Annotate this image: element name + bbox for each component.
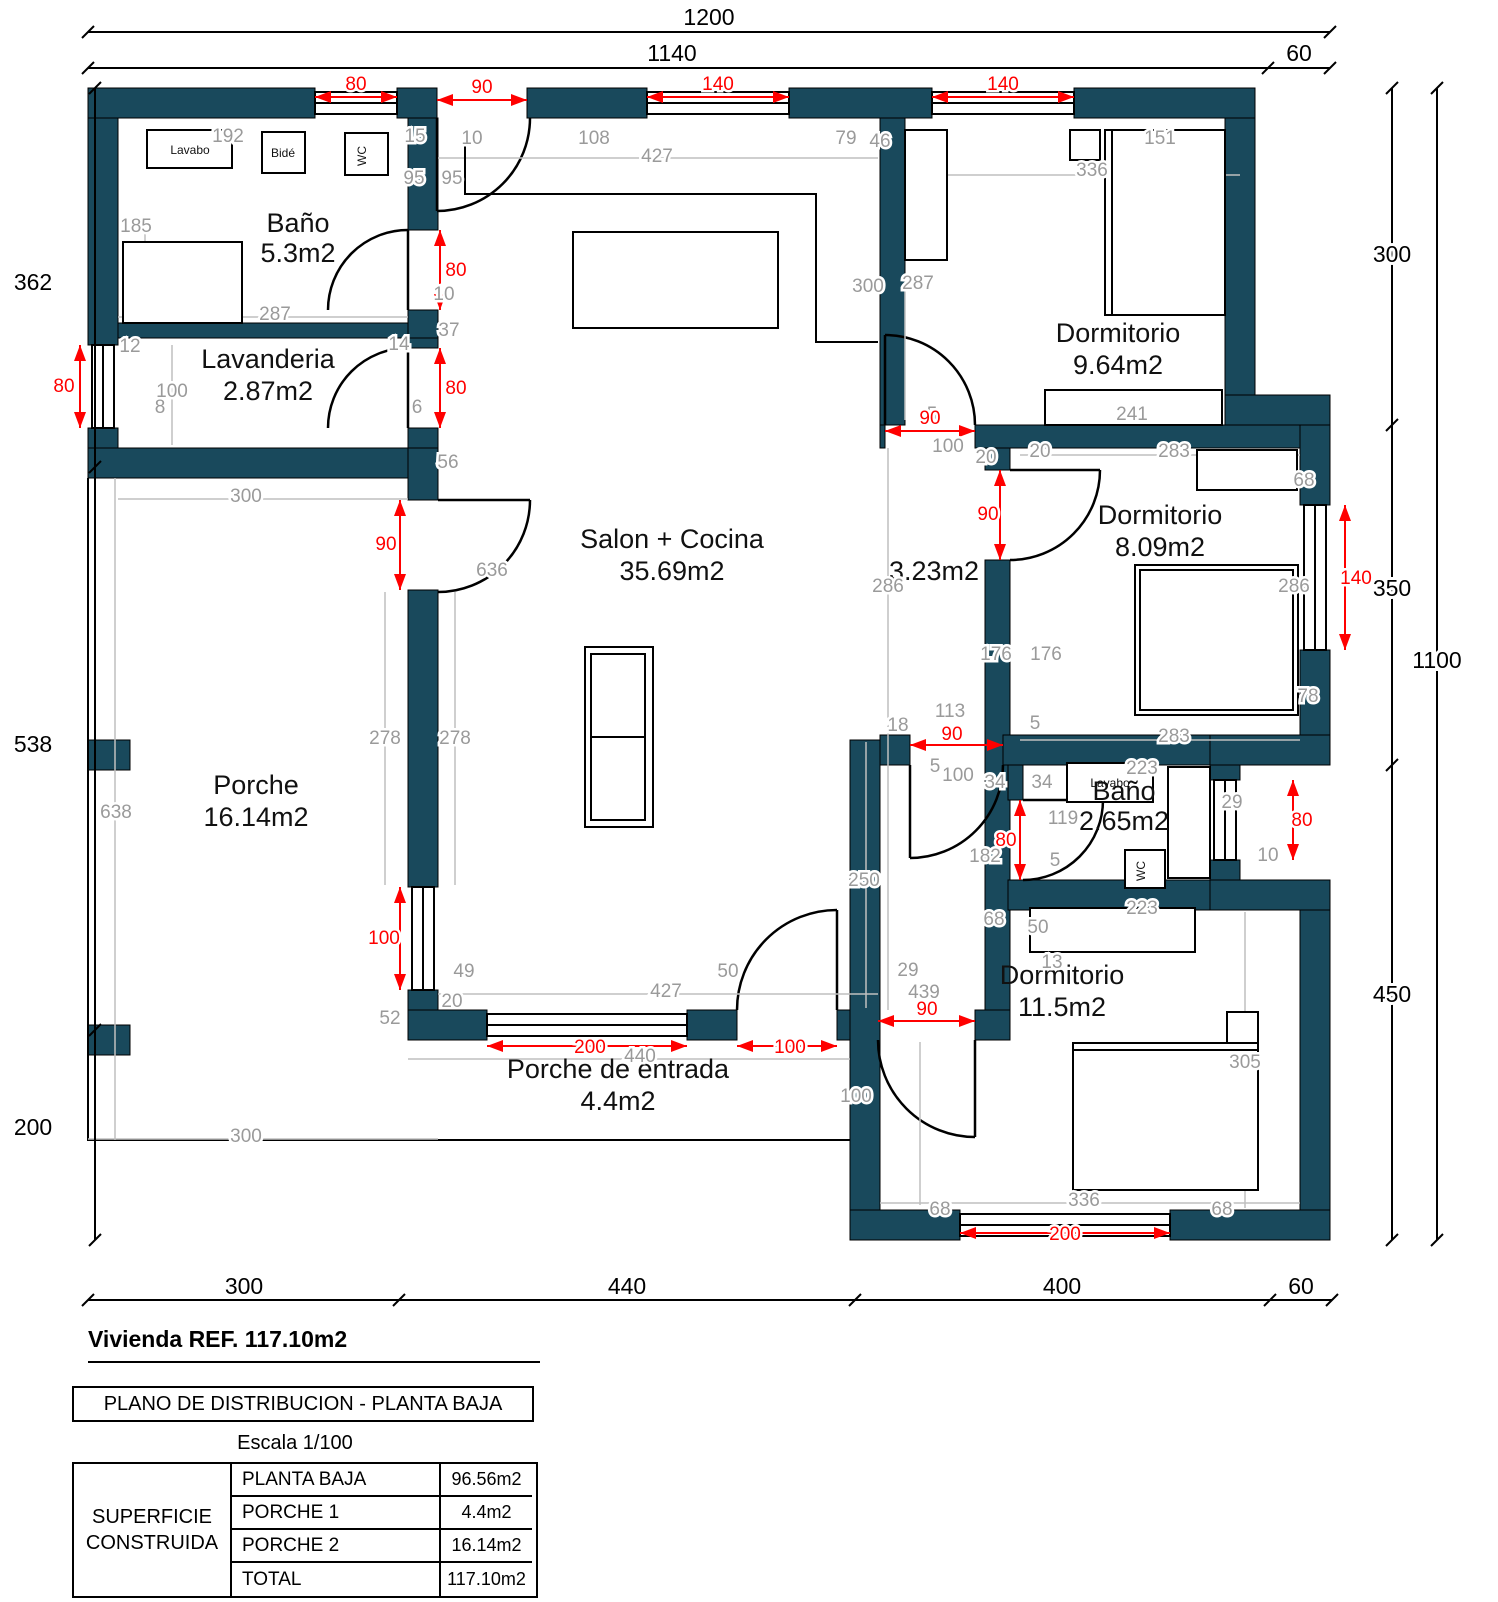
dimension-red: 90 (916, 999, 937, 1020)
dimension-gray: 10 (461, 128, 482, 149)
dimension-gray: 185 (120, 216, 152, 237)
room-label-dormitorio1: Dormitorio (1056, 318, 1181, 348)
dimension-gray: 100 (932, 436, 964, 457)
plan-scale: Escala 1/100 (130, 1432, 460, 1455)
dimension-gray: 13 (1041, 952, 1062, 973)
room-area-dormitorio1: 9.64m2 (1073, 350, 1163, 380)
dimension-gray: 119 (1048, 808, 1078, 829)
dimension-gray: 15 (404, 126, 425, 147)
dimension-gray: 14 (388, 334, 410, 355)
dimension-gray: 176 (1030, 644, 1062, 665)
dimension-red: 90 (941, 724, 962, 745)
dimension-gray: 10 (1257, 845, 1278, 866)
dimension-black: 440 (608, 1273, 646, 1299)
bide-bano1-label: Bidé (271, 146, 295, 160)
door-entrada-salon-top (437, 118, 530, 211)
dimension-gray: 34 (984, 772, 1006, 793)
dimension-black: 1100 (1412, 647, 1461, 673)
dimension-gray: 29 (897, 960, 918, 981)
floor-plan-page: Baño5.3m2Lavanderia2.87m2Salon + Cocina3… (0, 0, 1498, 1602)
dimension-gray: 283 (1158, 441, 1190, 462)
room-label-porche-entrada: Porche de entrada (507, 1054, 730, 1084)
dimension-gray: 34 (1031, 772, 1053, 793)
dimension-black: 538 (14, 731, 52, 757)
dimension-red: 200 (1049, 1224, 1081, 1245)
room-area-bano1: 5.3m2 (260, 238, 335, 268)
dimension-gray: 636 (476, 560, 508, 581)
room-area-bano2: 2.65m2 (1079, 806, 1169, 836)
dimension-black: 200 (14, 1114, 52, 1140)
dimension-gray: 283 (1158, 726, 1190, 747)
surface-row-value: 96.56m2 (439, 1464, 532, 1497)
dimension-gray: 5 (930, 756, 941, 777)
dimension-red: 80 (995, 830, 1016, 851)
dimension-gray: 300 (852, 276, 884, 297)
dimension-gray: 18 (887, 715, 908, 736)
dimension-gray: 336 (1076, 160, 1108, 181)
dimension-red: 200 (574, 1037, 606, 1058)
dimension-gray: 20 (441, 991, 462, 1012)
room-label-lavanderia: Lavanderia (201, 344, 336, 374)
room-labels: Baño5.3m2Lavanderia2.87m2Salon + Cocina3… (201, 208, 1222, 1116)
door-lavanderia (328, 348, 408, 428)
dimension-gray: 278 (439, 728, 471, 749)
lavabo-bano1-label: Lavabo (170, 143, 210, 157)
dimension-black: 1140 (647, 40, 696, 66)
room-area-dormitorio3: 11.5m2 (1018, 992, 1106, 1022)
surface-row-label: TOTAL (232, 1563, 439, 1596)
dimension-gray: 52 (379, 1008, 400, 1029)
dimension-black: 1200 (683, 4, 734, 30)
dimension-black: 362 (14, 269, 52, 295)
dimension-black: 60 (1288, 1273, 1314, 1299)
bed-dormitorio1 (1105, 130, 1225, 315)
surface-table-header: SUPERFICIE CONSTRUIDA (74, 1464, 232, 1596)
door-dormitorio2 (1010, 470, 1100, 560)
dimension-gray: 250 (848, 870, 880, 891)
dimension-gray: 79 (835, 128, 856, 149)
dimension-black: 300 (1373, 241, 1411, 267)
sofa (585, 647, 653, 827)
cabinet-dormitorio3 (1030, 908, 1195, 952)
room-area-lavanderia: 2.87m2 (223, 376, 313, 406)
dimension-gray: 440 (624, 1046, 656, 1067)
nightstand-dormitorio1 (1070, 130, 1100, 160)
room-area-salon: 35.69m2 (619, 556, 724, 586)
porch-outline (88, 478, 850, 1140)
dimension-gray: 20 (975, 447, 996, 468)
dimension-gray: 56 (437, 452, 458, 473)
room-area-porche: 16.14m2 (203, 802, 308, 832)
dimension-red: 80 (345, 74, 366, 95)
dimension-gray: 20 (1029, 441, 1050, 462)
surface-row-value: 16.14m2 (439, 1530, 532, 1563)
window-bano1-top (315, 92, 397, 114)
closet-dormitorio1 (905, 130, 947, 260)
dimension-gray: 37 (438, 320, 459, 341)
dimension-red: 90 (977, 504, 998, 525)
dimension-gray: 68 (983, 909, 1004, 930)
ducha-bano1 (123, 242, 242, 323)
dimension-gray: 638 (100, 802, 132, 823)
dimension-black: 450 (1373, 981, 1411, 1007)
dimension-gray: 5 (1030, 713, 1041, 734)
dimension-gray: 151 (1144, 128, 1176, 149)
dimension-gray: 49 (453, 961, 474, 982)
dimension-gray: 223 (1126, 758, 1158, 779)
window-dormitorio1-top (932, 92, 1074, 114)
dimension-black: 60 (1286, 40, 1312, 66)
dimension-gray: 50 (717, 961, 738, 982)
dimension-gray: 10 (433, 284, 454, 305)
dimension-gray: 5 (1050, 850, 1061, 871)
dimension-gray: 113 (935, 701, 965, 722)
door-entrada-principal (737, 910, 837, 1010)
dimension-red: 80 (1291, 810, 1312, 831)
dimension-gray: 8 (155, 397, 166, 418)
dimension-gray: 29 (1221, 792, 1242, 813)
dimension-red: 80 (53, 376, 74, 397)
dimension-gray: 68 (1293, 470, 1314, 491)
surface-row-value: 117.10m2 (439, 1563, 532, 1596)
dimension-gray: 223 (1126, 898, 1158, 919)
dimension-gray: 78 (1297, 686, 1318, 707)
dimension-gray: 68 (929, 1199, 950, 1220)
dimension-gray: 6 (412, 397, 423, 418)
surface-row-label: PORCHE 2 (232, 1530, 439, 1563)
dimension-gray: 192 (212, 126, 244, 147)
plan-subtitle-box: PLANO DE DISTRIBUCION - PLANTA BAJA (72, 1386, 534, 1422)
dimension-red: 90 (919, 408, 940, 429)
dimension-red: 140 (1340, 568, 1372, 589)
dimension-gray: 336 (1068, 1190, 1100, 1211)
dimension-red: 100 (368, 928, 400, 949)
dimension-gray: 300 (230, 486, 262, 507)
dimension-gray: 241 (1116, 404, 1148, 425)
dimension-black: 400 (1043, 1273, 1081, 1299)
dimension-gray: 287 (902, 273, 934, 294)
door-bano1 (328, 230, 408, 310)
dimension-black: 350 (1373, 575, 1411, 601)
surface-row-label: PLANTA BAJA (232, 1464, 439, 1497)
surface-row-label: PORCHE 1 (232, 1497, 439, 1530)
dimension-gray: 427 (650, 981, 682, 1002)
dimension-gray: 50 (1027, 917, 1048, 938)
lavabo-bano2-label: Lavabo (1090, 776, 1130, 790)
room-area-dormitorio2: 8.09m2 (1115, 532, 1205, 562)
wc-bano1-label: WC (355, 146, 369, 166)
dimension-gray: 100 (942, 765, 974, 786)
dimension-gray: 176 (980, 644, 1012, 665)
dimension-gray: 100 (840, 1086, 872, 1107)
ducha-bano2 (1168, 767, 1210, 878)
room-area-porche-entrada: 4.4m2 (580, 1086, 655, 1116)
closet-dormitorio2 (1197, 450, 1297, 490)
dimension-gray: 427 (641, 146, 673, 167)
bed-dormitorio2 (1135, 565, 1298, 715)
room-label-porche: Porche (213, 770, 299, 800)
dimension-gray: 278 (369, 728, 401, 749)
window-salon-top-1 (647, 92, 789, 114)
kitchen-island (573, 232, 778, 328)
dimension-gray: 95 (403, 168, 424, 189)
window-salon-porche (412, 887, 434, 990)
dimension-gray: 46 (869, 131, 890, 152)
room-label-dormitorio2: Dormitorio (1098, 500, 1223, 530)
plan-title: Vivienda REF. 117.10m2 (88, 1326, 540, 1363)
dimension-gray: 12 (119, 336, 140, 357)
window-salon-bottom (487, 1014, 687, 1036)
room-label-salon: Salon + Cocina (580, 524, 765, 554)
nightstand-dormitorio3 (1227, 1012, 1258, 1043)
dimension-gray: 286 (872, 576, 904, 597)
dimension-red: 100 (774, 1037, 806, 1058)
dimension-black: 300 (225, 1273, 263, 1299)
dimension-red: 90 (375, 534, 396, 555)
dimension-gray: 95 (441, 168, 462, 189)
dimension-red: 140 (987, 74, 1019, 95)
dimension-red: 140 (702, 74, 734, 95)
dimension-red: 80 (445, 378, 466, 399)
dimension-gray: 108 (578, 128, 610, 149)
surface-row-value: 4.4m2 (439, 1497, 532, 1530)
door-dormitorio3 (878, 1040, 975, 1137)
dimension-gray: 286 (1278, 576, 1310, 597)
dimension-red: 90 (471, 77, 492, 98)
dimension-red: 80 (445, 260, 466, 281)
dimension-gray: 68 (1211, 1199, 1232, 1220)
dimension-gray: 287 (259, 304, 291, 325)
wc-bano2-label: WC (1134, 861, 1148, 881)
dimension-gray: 305 (1229, 1052, 1261, 1073)
surface-table: SUPERFICIE CONSTRUIDA PLANTA BAJA 96.56m… (72, 1462, 538, 1598)
room-label-bano1: Baño (266, 208, 329, 238)
dimension-gray: 300 (230, 1126, 262, 1147)
